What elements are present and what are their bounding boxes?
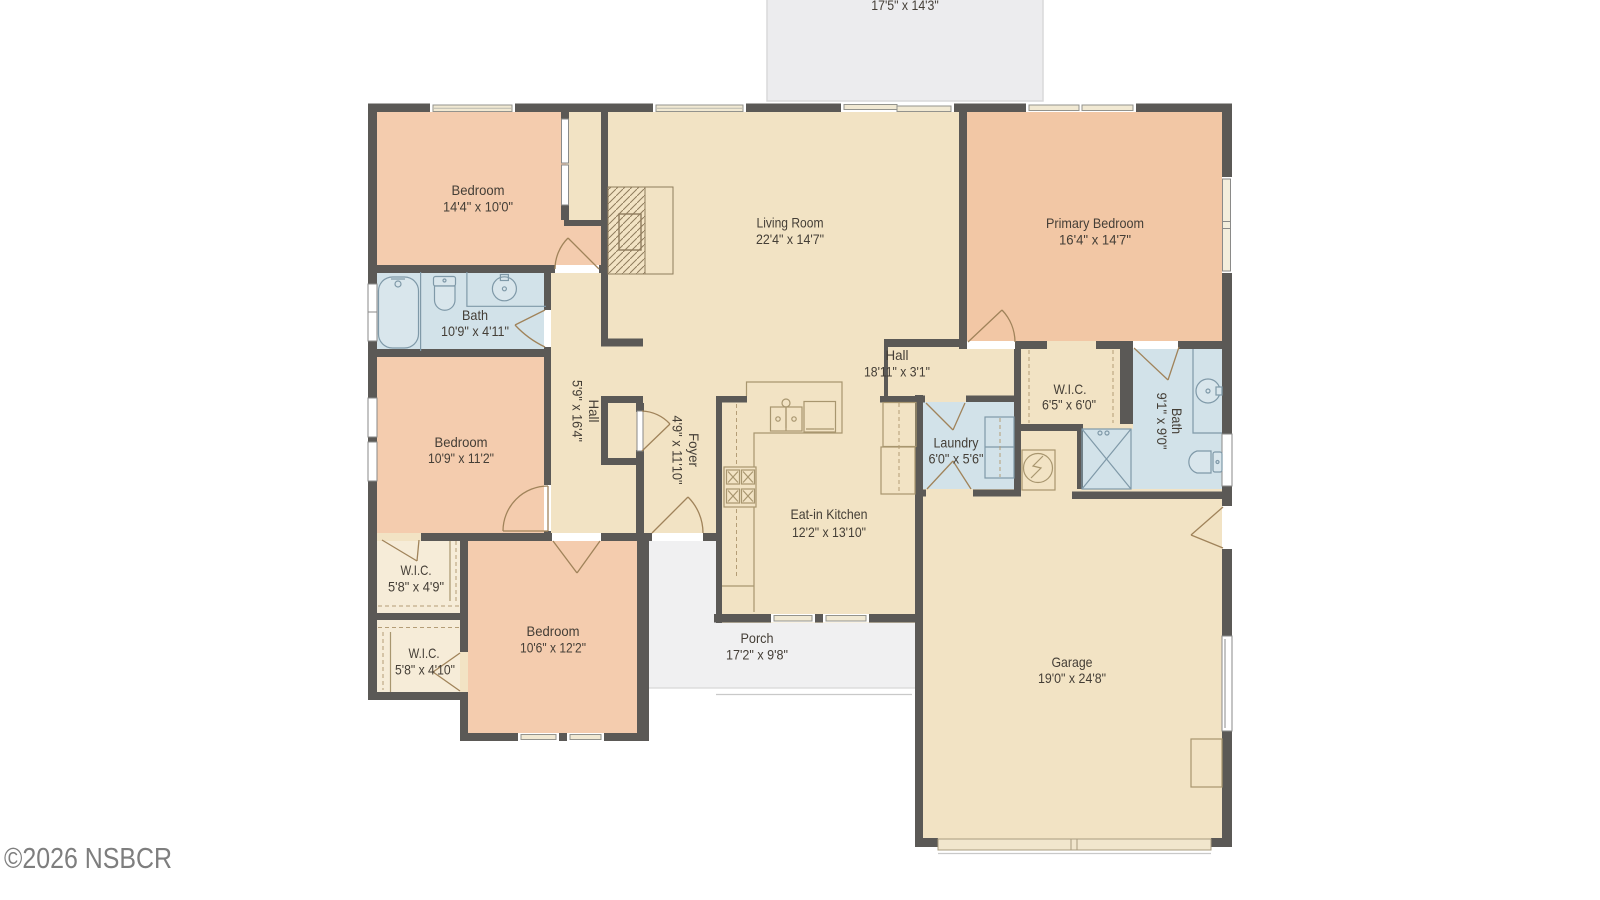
svg-text:Bath: Bath: [462, 307, 488, 323]
svg-text:Hall: Hall: [886, 347, 909, 363]
svg-text:W.I.C.: W.I.C.: [409, 645, 440, 661]
svg-text:12'2" x 13'10": 12'2" x 13'10": [792, 524, 866, 540]
svg-text:Porch: Porch: [741, 630, 774, 646]
svg-text:5'9" x 16'4": 5'9" x 16'4": [570, 380, 586, 442]
svg-text:10'9" x 11'2": 10'9" x 11'2": [428, 450, 494, 466]
svg-text:18'11" x 3'1": 18'11" x 3'1": [864, 364, 930, 380]
svg-text:Foyer: Foyer: [686, 433, 702, 467]
svg-text:9'1" x 9'0": 9'1" x 9'0": [1154, 393, 1170, 450]
svg-text:Hall: Hall: [586, 400, 602, 423]
svg-text:6'0" x 5'6": 6'0" x 5'6": [929, 451, 984, 467]
svg-text:W.I.C.: W.I.C.: [401, 562, 432, 578]
svg-text:Eat-in Kitchen: Eat-in Kitchen: [791, 506, 868, 522]
svg-text:Bedroom: Bedroom: [435, 434, 488, 450]
svg-text:Living Room: Living Room: [757, 215, 824, 231]
svg-text:W.I.C.: W.I.C.: [1054, 381, 1087, 397]
svg-text:©2026 NSBCR: ©2026 NSBCR: [4, 842, 172, 874]
svg-text:16'4" x 14'7": 16'4" x 14'7": [1059, 232, 1131, 248]
svg-text:Bath: Bath: [1169, 408, 1185, 434]
svg-text:Bedroom: Bedroom: [527, 623, 580, 639]
svg-text:10'9" x 4'11": 10'9" x 4'11": [441, 323, 509, 339]
svg-text:Garage: Garage: [1052, 654, 1093, 670]
svg-text:Laundry: Laundry: [934, 435, 979, 451]
svg-text:19'0" x 24'8": 19'0" x 24'8": [1038, 670, 1106, 686]
svg-text:5'8" x 4'10": 5'8" x 4'10": [395, 662, 455, 678]
svg-text:5'8" x 4'9": 5'8" x 4'9": [388, 579, 444, 595]
svg-text:22'4" x 14'7": 22'4" x 14'7": [756, 231, 824, 247]
svg-text:Bedroom: Bedroom: [452, 182, 505, 198]
svg-text:17'2" x 9'8": 17'2" x 9'8": [726, 647, 788, 663]
svg-text:6'5" x 6'0": 6'5" x 6'0": [1042, 397, 1096, 413]
svg-text:4'9" x 11'10": 4'9" x 11'10": [670, 416, 686, 485]
svg-text:14'4" x 10'0": 14'4" x 10'0": [443, 199, 513, 215]
svg-text:17'5" x 14'3": 17'5" x 14'3": [871, 0, 939, 13]
svg-text:Primary Bedroom: Primary Bedroom: [1046, 215, 1144, 231]
svg-text:10'6" x 12'2": 10'6" x 12'2": [520, 640, 586, 656]
